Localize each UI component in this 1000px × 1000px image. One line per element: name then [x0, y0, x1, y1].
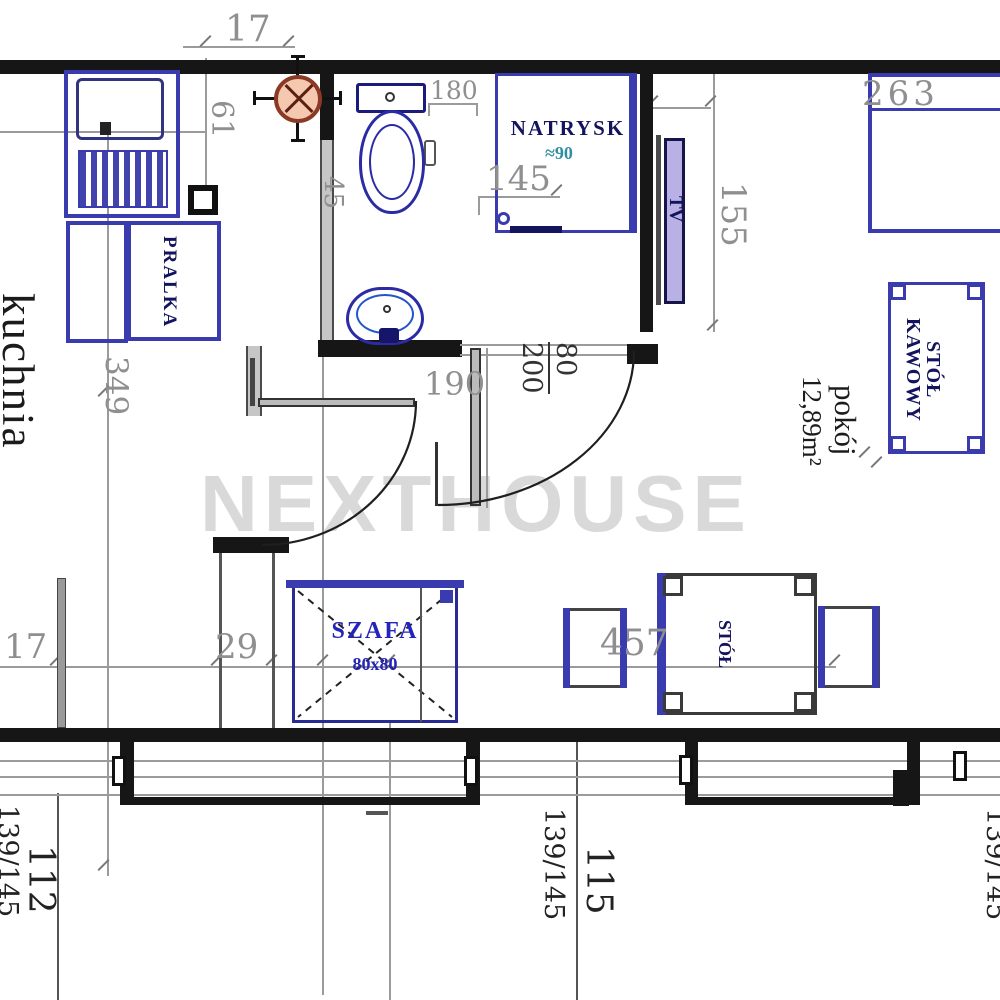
wall-stub: [188, 185, 218, 215]
dim-115: 115: [580, 846, 616, 915]
dim-line-457-left-ext: [389, 720, 391, 1000]
window-notch: [112, 756, 126, 786]
shower-label: NATRYSK: [502, 118, 634, 139]
window-line-1: [0, 760, 1000, 762]
dim-180: 180: [430, 78, 478, 103]
kitchen-counter-wall: [57, 578, 66, 728]
wardrobe-front-edge: [286, 580, 464, 588]
chair-left-back: [563, 608, 570, 688]
tv-wall-bracket: [656, 135, 661, 305]
bathroom-west-wall: [320, 140, 334, 346]
dim-line-155-top: [647, 107, 711, 109]
shower-edge-mark: [510, 226, 562, 233]
wardrobe-size-label: 80x80: [292, 654, 458, 675]
coffee-table-label: STÓŁ KAWOWY: [903, 300, 943, 440]
hall-south-wall: [213, 537, 289, 553]
dim-145: 145: [486, 162, 551, 196]
washer-label: PRALKA: [160, 236, 179, 328]
window-right-spec: 139/145: [982, 808, 1000, 920]
dim-29: 29: [215, 630, 258, 664]
coffee-table-leg: [967, 436, 983, 452]
chair-right: [820, 606, 880, 688]
lamp-symbol-tick: [291, 139, 305, 142]
coffee-table-leg: [967, 284, 983, 300]
dim-155: 155: [716, 182, 750, 247]
dim-17-top: 17: [225, 12, 271, 48]
dining-table-label: STÓŁ: [716, 604, 734, 684]
coffee-table-label-line1: STÓŁ: [923, 300, 943, 440]
wardrobe-label: SZAFA: [292, 618, 458, 645]
dim-end-mark: [366, 811, 388, 815]
lamp-symbol-tick: [253, 91, 256, 105]
wardrobe-corner-block: [440, 590, 453, 603]
dining-table-leg: [663, 576, 683, 596]
lamp-symbol-tick: [339, 91, 342, 105]
window-left-spec: 139/145: [0, 805, 21, 917]
sink-drain: [383, 305, 391, 313]
door-stop-line: [435, 442, 438, 506]
window-notch: [679, 755, 693, 785]
bottom-wall: [0, 728, 1000, 742]
shaft-line-right: [272, 553, 275, 728]
room-door-corner-wall: [627, 344, 658, 364]
bathroom-west-wall-upper: [320, 74, 334, 140]
window-notch: [464, 756, 478, 786]
door-size-width: 80: [550, 342, 581, 394]
door-size-label: 80 200: [516, 342, 581, 394]
washer-door-handle: [100, 122, 111, 135]
chair-right-front: [818, 606, 825, 688]
dim-61: 61: [206, 100, 236, 138]
tick-mark: [870, 456, 882, 468]
toilet-side-fitting: [424, 140, 436, 166]
door-leaf-bathroom: [258, 398, 415, 407]
window-line-2: [0, 776, 1000, 778]
room-area: 12,89m²: [796, 328, 827, 513]
dining-table-leg: [794, 692, 814, 712]
bathroom-east-wall: [640, 74, 653, 332]
coffee-table-leg: [890, 284, 906, 300]
dim-45: 45: [320, 176, 346, 209]
kitchen-label: kuchnia: [0, 293, 44, 449]
washer-vent-grille: [78, 150, 168, 208]
door-size-height: 200: [516, 342, 550, 394]
dim-line-145-drop: [478, 196, 480, 215]
window-line-3: [0, 794, 1000, 796]
dim-263: 263: [862, 77, 939, 111]
room-name: pokój: [827, 328, 863, 513]
window-bay-left-sill: [120, 797, 480, 805]
dining-table-leg: [794, 576, 814, 596]
floor-plan: NEXTHOUSE: [0, 0, 1000, 1000]
dim-17-bottom: 17: [4, 630, 47, 664]
toilet-flush-button: [385, 92, 395, 102]
room-label: pokój 12,89m²: [796, 328, 863, 513]
door-hinge-bathroom: [250, 358, 255, 406]
tv-label: TV: [666, 196, 685, 222]
door-leaf-room-shadow: [486, 348, 488, 508]
window-notch: [953, 751, 967, 781]
dim-112: 112: [22, 845, 58, 914]
bottom-right-corner-wall: [893, 770, 909, 806]
washer-door: [76, 78, 164, 140]
dining-table-leg: [663, 692, 683, 712]
utility-cabinet: [66, 221, 128, 343]
window-bay-right-sill: [685, 797, 920, 805]
chair-right-back: [872, 606, 879, 688]
dim-190: 190: [424, 368, 485, 400]
sink-tap: [379, 328, 399, 343]
lamp-symbol-tick: [291, 55, 305, 58]
shower-drain: [497, 212, 510, 225]
window-mid-spec: 139/145: [540, 808, 567, 920]
dim-457: 457: [600, 626, 669, 662]
coffee-table-label-line2: KAWOWY: [903, 300, 923, 440]
toilet-bowl-inner: [369, 124, 415, 200]
dim-349: 349: [100, 356, 131, 415]
